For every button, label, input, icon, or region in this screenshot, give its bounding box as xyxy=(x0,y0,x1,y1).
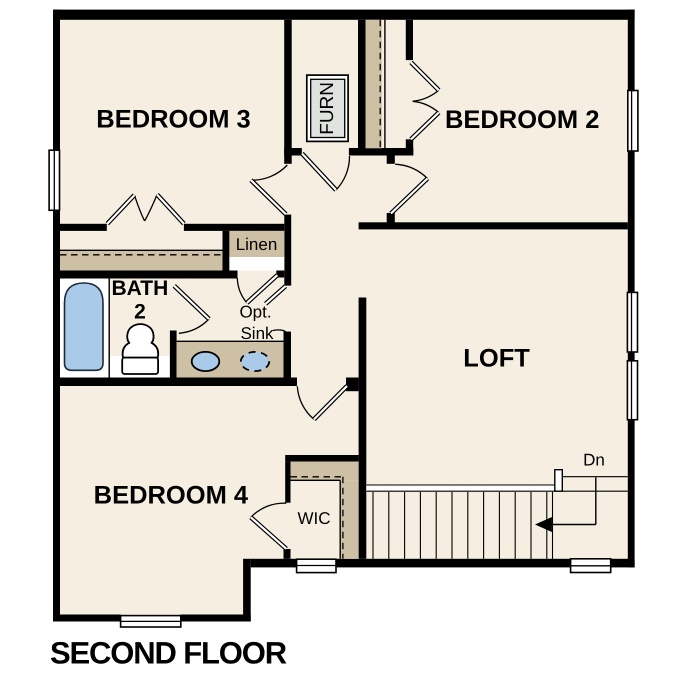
svg-text:FURN: FURN xyxy=(317,82,338,135)
svg-text:SECOND FLOOR: SECOND FLOOR xyxy=(50,636,287,671)
svg-text:WIC: WIC xyxy=(297,509,330,528)
svg-text:BEDROOM 4: BEDROOM 4 xyxy=(94,482,249,510)
svg-text:LOFT: LOFT xyxy=(463,345,530,373)
svg-text:Linen: Linen xyxy=(236,235,278,254)
svg-text:BEDROOM 3: BEDROOM 3 xyxy=(96,106,250,134)
svg-text:Dn: Dn xyxy=(583,450,605,469)
svg-text:BATH: BATH xyxy=(112,277,169,300)
svg-text:2: 2 xyxy=(134,301,146,324)
svg-text:Sink: Sink xyxy=(240,324,274,343)
svg-text:Opt.: Opt. xyxy=(239,303,271,322)
svg-text:BEDROOM 2: BEDROOM 2 xyxy=(445,106,599,134)
